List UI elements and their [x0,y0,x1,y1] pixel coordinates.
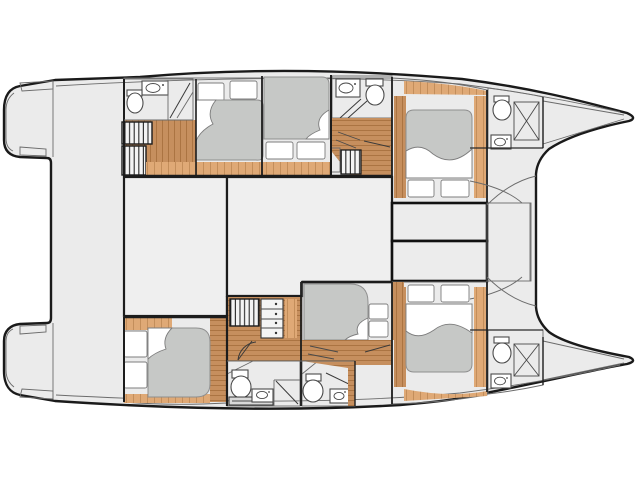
pillow [441,285,469,302]
pillow [297,142,325,159]
wood-strip [474,287,486,387]
wood-floor [210,318,227,402]
toilet-icon [303,380,323,402]
pillow [408,180,434,197]
pillow [369,321,388,337]
sink-counter [336,79,360,97]
foredeck-locker-aft [392,241,487,281]
toilet-icon [231,376,251,398]
toilet-icon [366,85,384,105]
pillow [441,180,469,197]
wood-cabinet [285,299,297,338]
pillow [124,362,147,388]
toilet-icon [127,93,143,113]
double-bed [264,77,329,139]
port-inboard-wood-strip [146,162,331,175]
pillow [230,81,257,99]
wood-strip [394,96,406,198]
pillow [198,83,224,101]
catamaran-floorplan [0,0,640,480]
sink-counter [491,374,511,388]
saloon-annex [227,177,392,296]
toilet-icon [493,100,511,120]
stbd-companionway-steps [230,299,259,326]
port-companionway-steps [122,146,146,175]
foredeck-locker-forward [392,203,487,241]
saloon [124,177,227,316]
port-hatch-steps [341,150,361,174]
pillow [266,142,293,159]
sink-counter [252,389,273,402]
sink-counter [330,389,349,403]
stbd-companionway [227,296,302,361]
dresser [261,299,283,338]
sink-counter [491,135,511,149]
toilet-icon [493,343,511,363]
port-steps-upper [122,122,152,144]
pillow [124,331,147,357]
pillow [408,285,434,302]
pillow [369,304,388,319]
wood-strip [394,287,406,387]
